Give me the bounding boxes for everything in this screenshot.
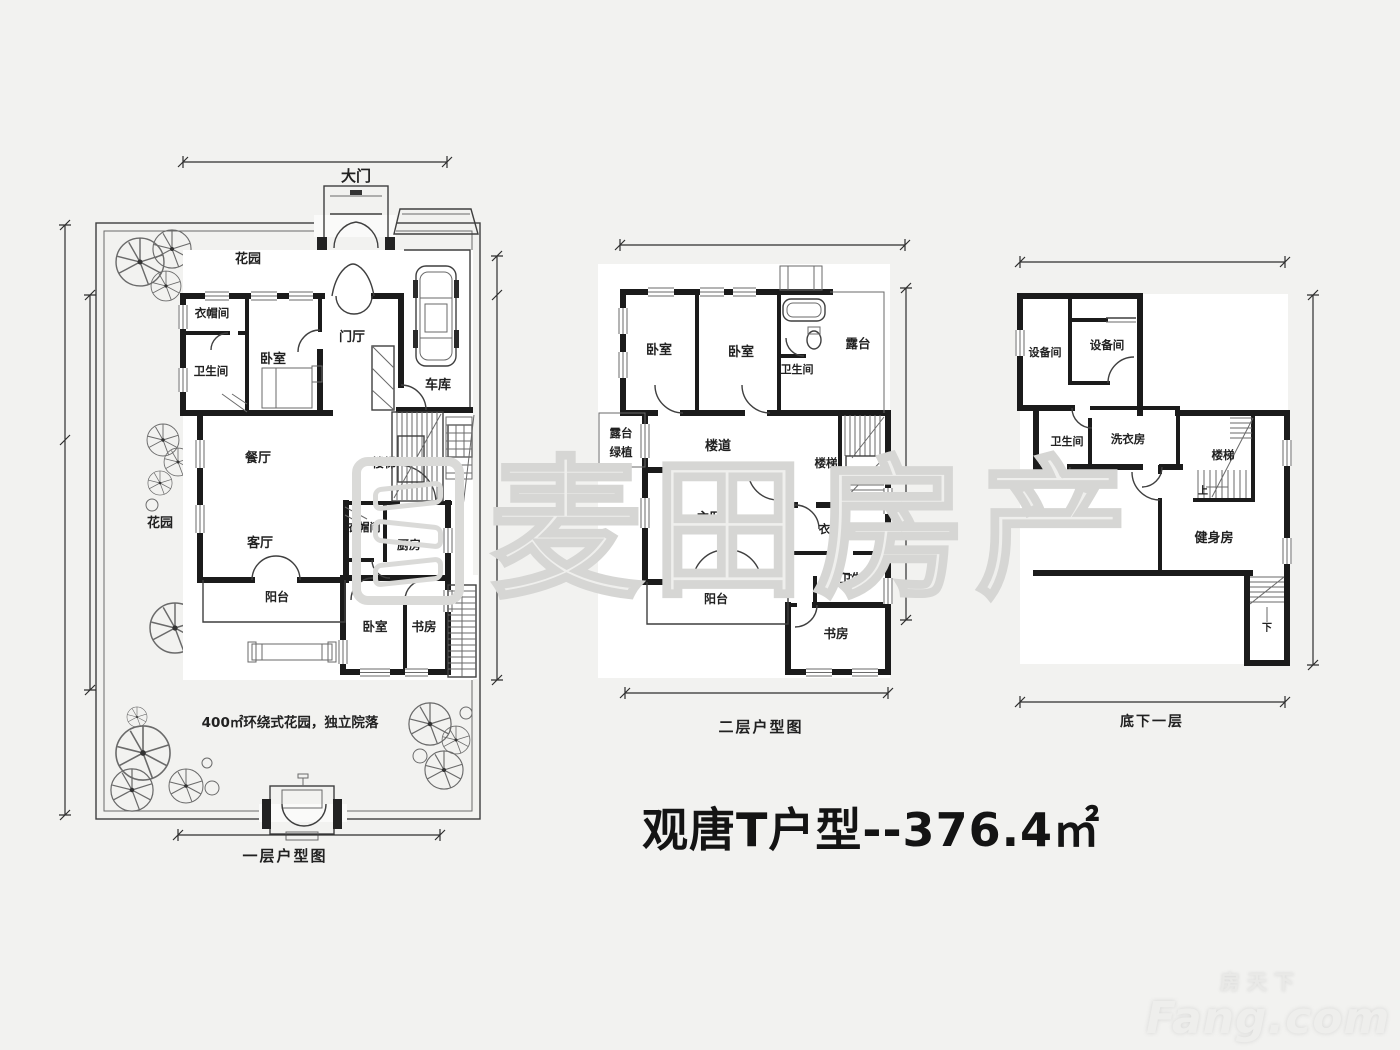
plan-second-floor: 卧室 卧室 卫生间 露台 露台 绿植 楼道 楼梯 主卧室 衣帽间 卫生间 阳台 … <box>598 239 912 736</box>
room-label-equipment-left: 设备间 <box>1029 345 1062 359</box>
room-label-bathroom-top: 卫生间 <box>781 362 814 376</box>
plan-caption-first-floor: 一层户型图 <box>242 847 327 865</box>
plan-basement: 设备间 设备间 卫生间 洗衣房 楼梯 上 影音室 健身房 下 底下一层 <box>1015 256 1319 730</box>
room-label-living: 客厅 <box>247 535 273 551</box>
room-label-study-1f: 书房 <box>411 619 436 634</box>
room-label-laundry: 洗衣房 <box>1111 432 1146 446</box>
room-label-stairs-2f: 楼梯 <box>815 456 838 470</box>
garden-note: 400㎡环绕式花园，独立院落 <box>202 714 379 731</box>
room-label-dining: 餐厅 <box>244 450 271 466</box>
room-label-bedroom-mid: 卧室 <box>728 344 754 360</box>
room-label-equipment-right: 设备间 <box>1090 338 1125 352</box>
floorplan-canvas: 大门 花园 衣帽间 卫生间 卧室 门厅 车库 餐厅 楼梯 花园 客厅 衣帽间 厨… <box>0 0 1400 1050</box>
stairs-up-label: 上 <box>1198 484 1208 497</box>
room-label-study-2f: 书房 <box>823 626 848 641</box>
stairs-down-label: 下 <box>1262 622 1272 634</box>
room-label-stairs-1f: 楼梯 <box>372 455 396 470</box>
room-label-bathroom-basement: 卫生间 <box>1051 434 1084 448</box>
page-title: 观唐T户型--376.4㎡ <box>642 794 1100 860</box>
room-label-bedroom-top: 卧室 <box>260 351 286 367</box>
room-label-balcony-1f: 阳台 <box>265 589 289 604</box>
room-label-garden-top: 花园 <box>235 251 261 267</box>
room-label-cloakroom-top: 衣帽间 <box>195 306 230 320</box>
room-label-master-bedroom: 主卧室 <box>696 510 735 526</box>
gate-label: 大门 <box>341 167 371 185</box>
room-label-garage: 车库 <box>425 377 451 393</box>
room-label-foyer: 门厅 <box>339 329 365 345</box>
room-label-bedroom-bottom: 卧室 <box>362 619 388 634</box>
floorplan-sheet: 大门 花园 衣帽间 卫生间 卧室 门厅 车库 餐厅 楼梯 花园 客厅 衣帽间 厨… <box>0 0 1400 1050</box>
room-label-terrace: 露台 <box>845 336 870 351</box>
room-label-terrace-green-1: 露台 <box>610 426 633 440</box>
room-label-garden-left: 花园 <box>147 515 173 531</box>
room-label-corridor: 楼道 <box>705 438 731 454</box>
room-label-terrace-green-2: 绿植 <box>610 445 633 459</box>
room-label-kitchen: 厨房 <box>397 537 421 552</box>
room-label-cinema: 影音室 <box>1076 510 1115 526</box>
room-label-cloakroom-2f: 衣帽间 <box>819 522 854 536</box>
plan-first-floor: 大门 花园 衣帽间 卫生间 卧室 门厅 车库 餐厅 楼梯 花园 客厅 衣帽间 厨… <box>59 156 503 865</box>
room-label-stairs-basement: 楼梯 <box>1212 448 1235 462</box>
room-label-bedroom-left: 卧室 <box>646 342 672 358</box>
room-label-cloakroom-mid: 衣帽间 <box>348 520 381 534</box>
plan-caption-second-floor: 二层户型图 <box>718 718 803 736</box>
driveway-canopy <box>394 209 478 234</box>
room-label-bathroom: 卫生间 <box>194 364 229 378</box>
room-label-bathroom-mid: 卫生间 <box>840 571 875 585</box>
room-label-balcony-2f: 阳台 <box>704 591 728 606</box>
plan-caption-basement: 底下一层 <box>1120 713 1184 730</box>
room-label-gym: 健身房 <box>1194 530 1233 546</box>
